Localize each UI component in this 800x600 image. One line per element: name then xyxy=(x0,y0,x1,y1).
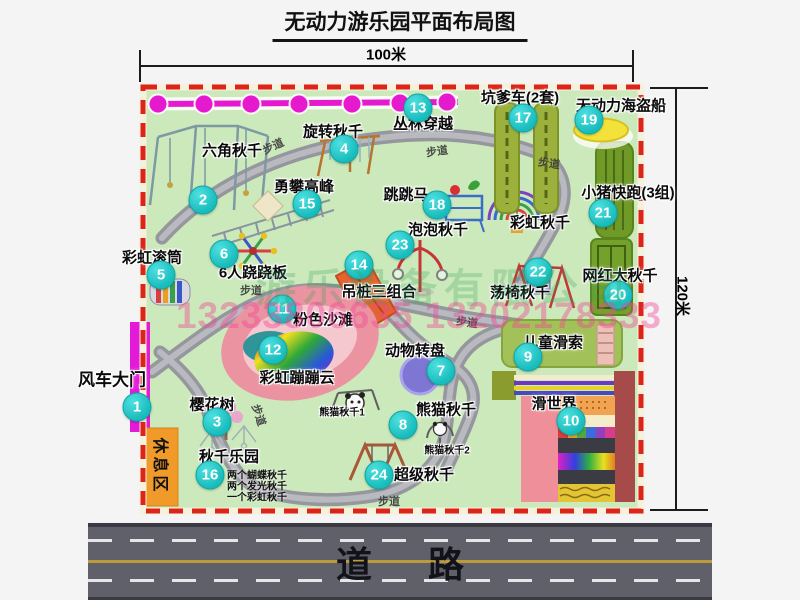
attraction-23-label: 泡泡秋千 xyxy=(408,219,468,240)
attraction-18-bubble: 18 xyxy=(423,191,452,220)
rainbow-swing-label: 彩虹秋千 xyxy=(510,212,570,233)
height-dimension-label: 120米 xyxy=(673,276,694,316)
attraction-16-bubble: 16 xyxy=(196,461,225,490)
attraction-7-bubble: 7 xyxy=(427,357,456,386)
attraction-15-bubble: 15 xyxy=(293,190,322,219)
attraction-3-bubble: 3 xyxy=(203,408,232,437)
panda-swing-1-label: 熊猫秋千1 xyxy=(319,404,365,419)
attraction-9-bubble: 9 xyxy=(514,343,543,372)
attraction-1-label: 风车大门 xyxy=(78,366,146,391)
attraction-17-bubble: 17 xyxy=(509,104,538,133)
attraction-24-bubble: 24 xyxy=(365,461,394,490)
panda-swing-2-label: 熊猫秋千2 xyxy=(424,442,470,457)
walkway-label-7: 步道 xyxy=(378,493,400,509)
attraction-5-bubble: 5 xyxy=(147,261,176,290)
width-dimension-label: 100米 xyxy=(366,44,406,65)
swing-note-3: 一个彩虹秋千 xyxy=(227,489,287,504)
attraction-24-label: 超级秋千 xyxy=(394,464,454,485)
attraction-12-bubble: 12 xyxy=(259,336,288,365)
attraction-12-label: 彩虹蹦蹦云 xyxy=(259,367,334,388)
attraction-10-bubble: 10 xyxy=(557,407,586,436)
attraction-6-bubble: 6 xyxy=(210,240,239,269)
attraction-13-bubble: 13 xyxy=(404,94,433,123)
attraction-19-bubble: 19 xyxy=(575,106,604,135)
attraction-4-bubble: 4 xyxy=(330,135,359,164)
walkway-label-3: 步道 xyxy=(537,154,561,173)
attraction-2-label: 六角秋千 xyxy=(202,140,262,161)
page-title: 无动力游乐园平面布局图 xyxy=(273,6,528,42)
attraction-2-bubble: 2 xyxy=(189,186,218,215)
attraction-21-bubble: 21 xyxy=(589,199,618,228)
attraction-8-label: 熊猫秋千 xyxy=(416,399,476,420)
walkway-label-2: 步道 xyxy=(425,142,449,161)
rest-area-label: 休息区 xyxy=(150,437,174,494)
attraction-1-bubble: 1 xyxy=(123,393,152,422)
road-label: 道 路 xyxy=(336,536,464,588)
road: 道 路 xyxy=(88,523,712,600)
watermark-phone: 13233806635 13202178333 xyxy=(176,295,662,337)
park-layout-map: 无动力游乐园平面布局图 xyxy=(0,0,800,600)
attraction-8-bubble: 8 xyxy=(389,411,418,440)
